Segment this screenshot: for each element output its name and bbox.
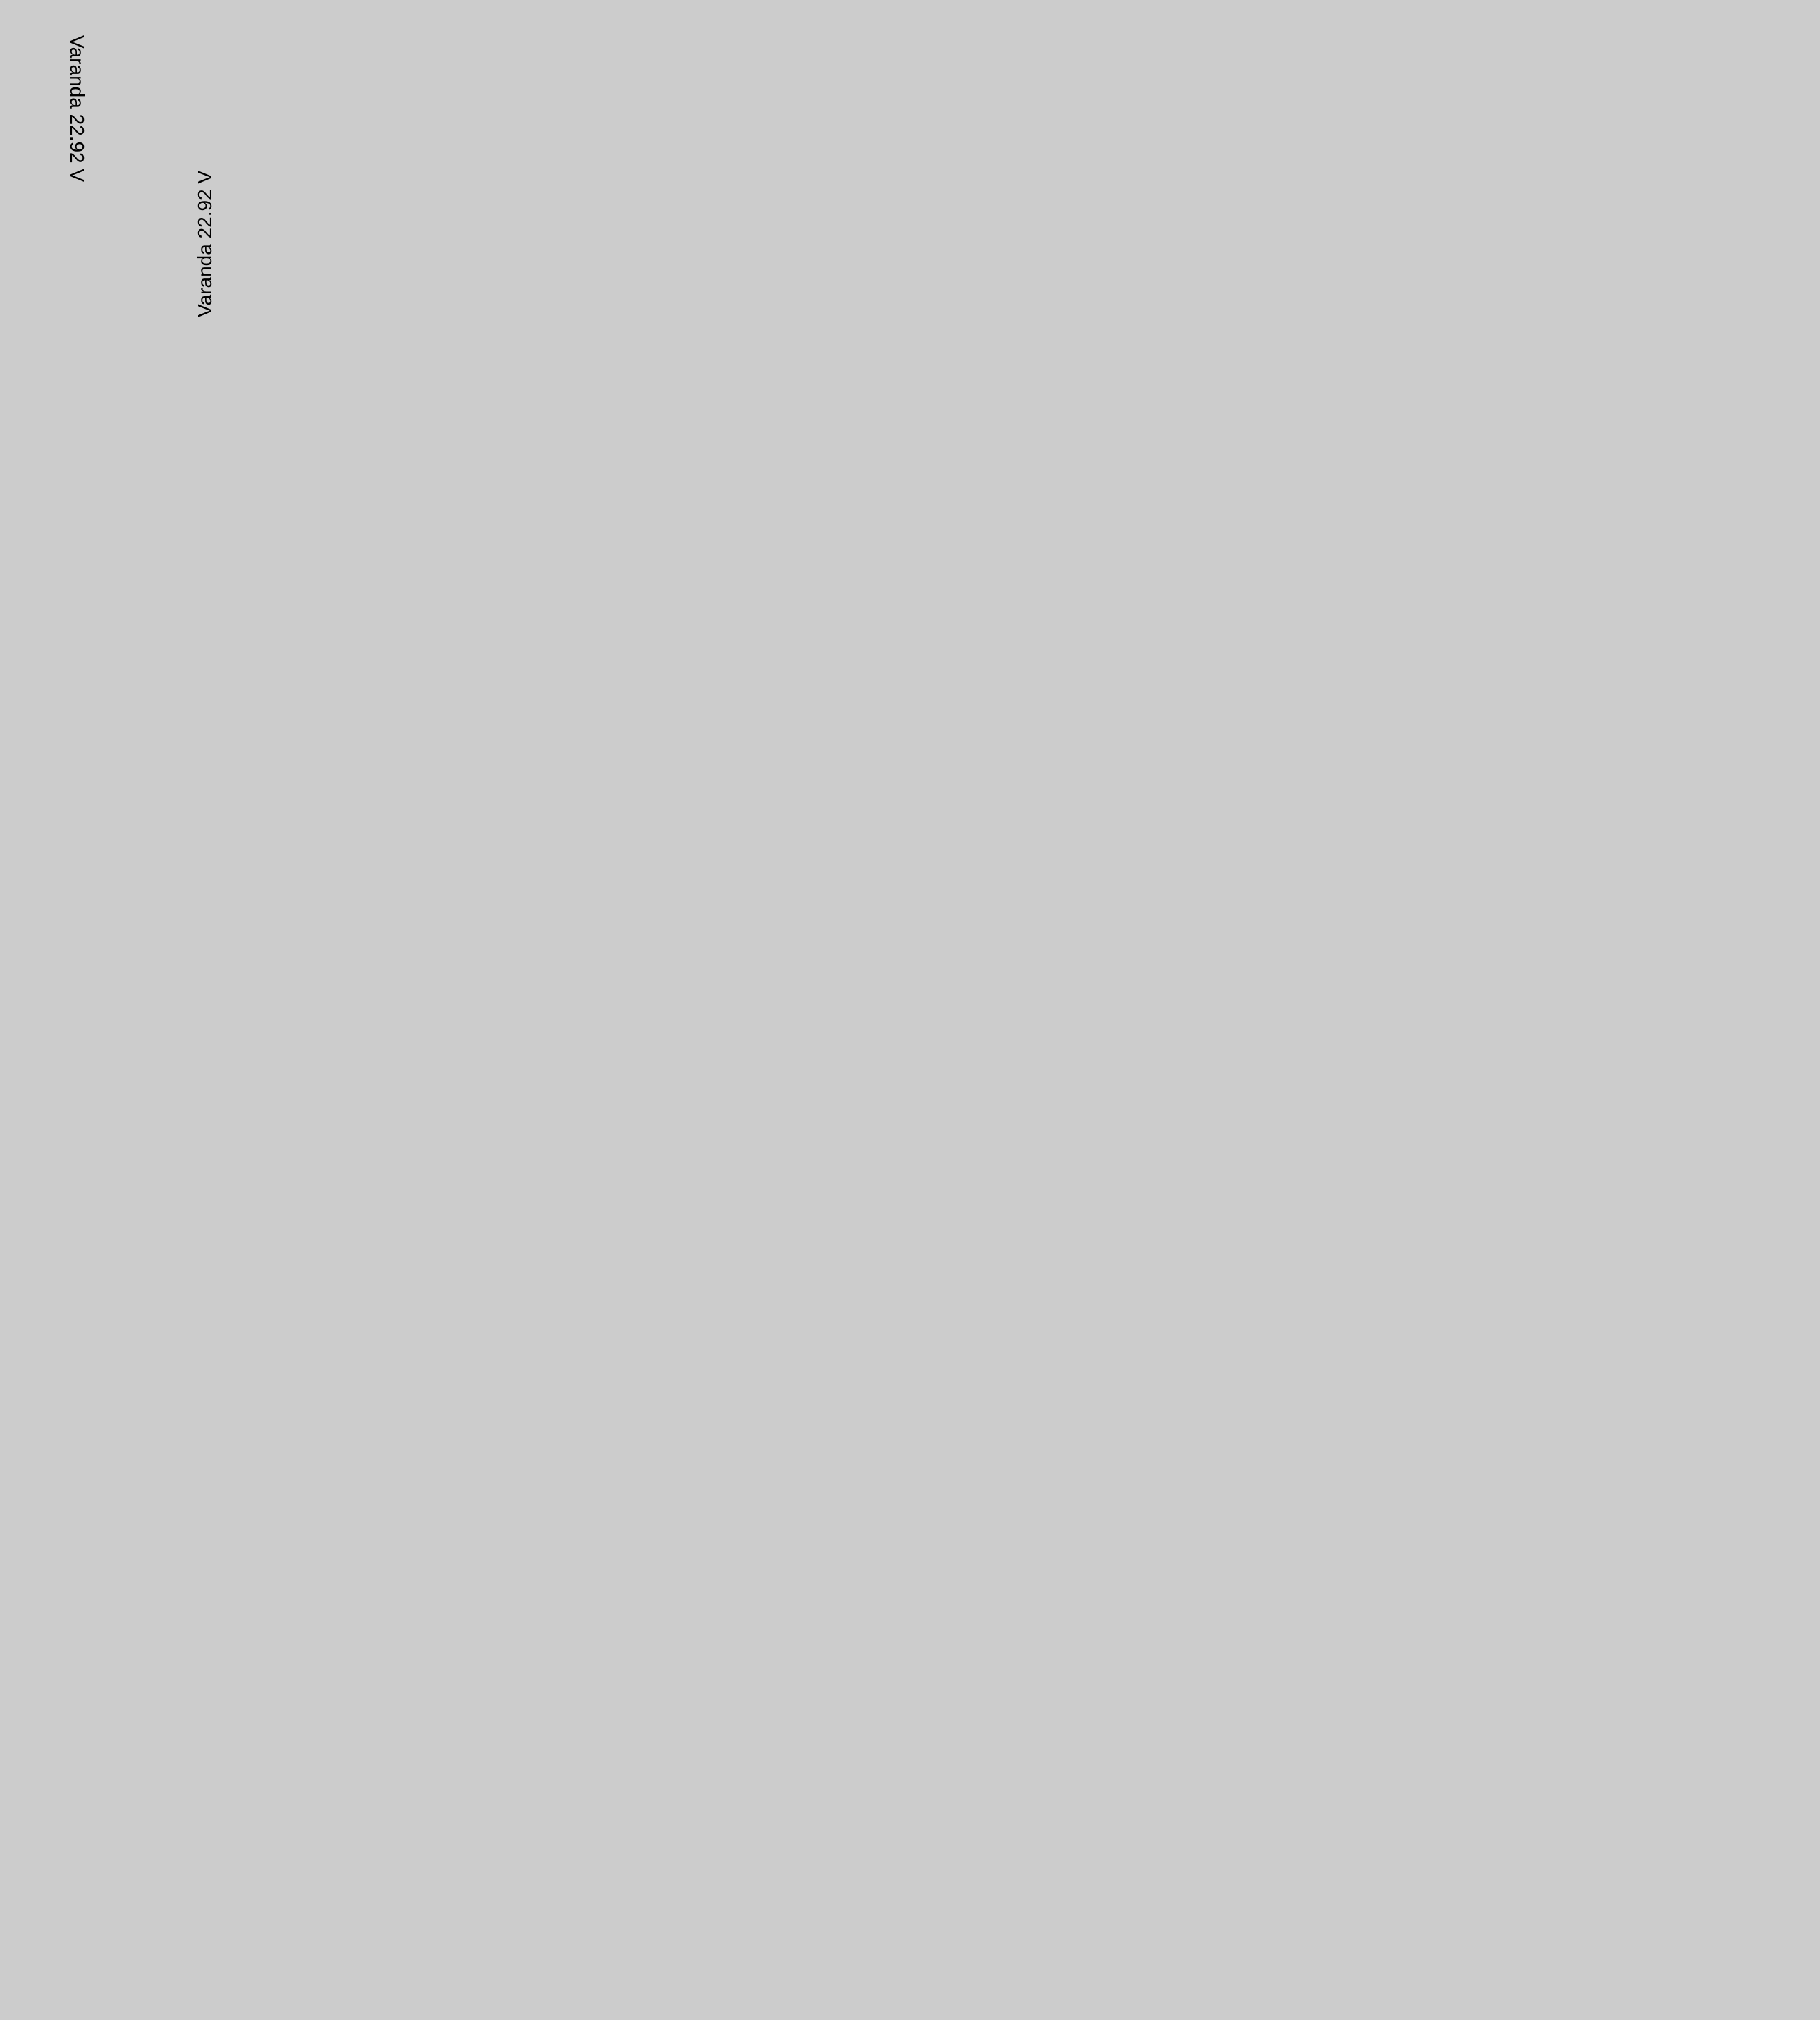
svg-text:Varanda 22.92 V: Varanda 22.92 V — [66, 35, 88, 182]
svg-text:Varanda 22.92 V: Varanda 22.92 V — [194, 171, 216, 317]
